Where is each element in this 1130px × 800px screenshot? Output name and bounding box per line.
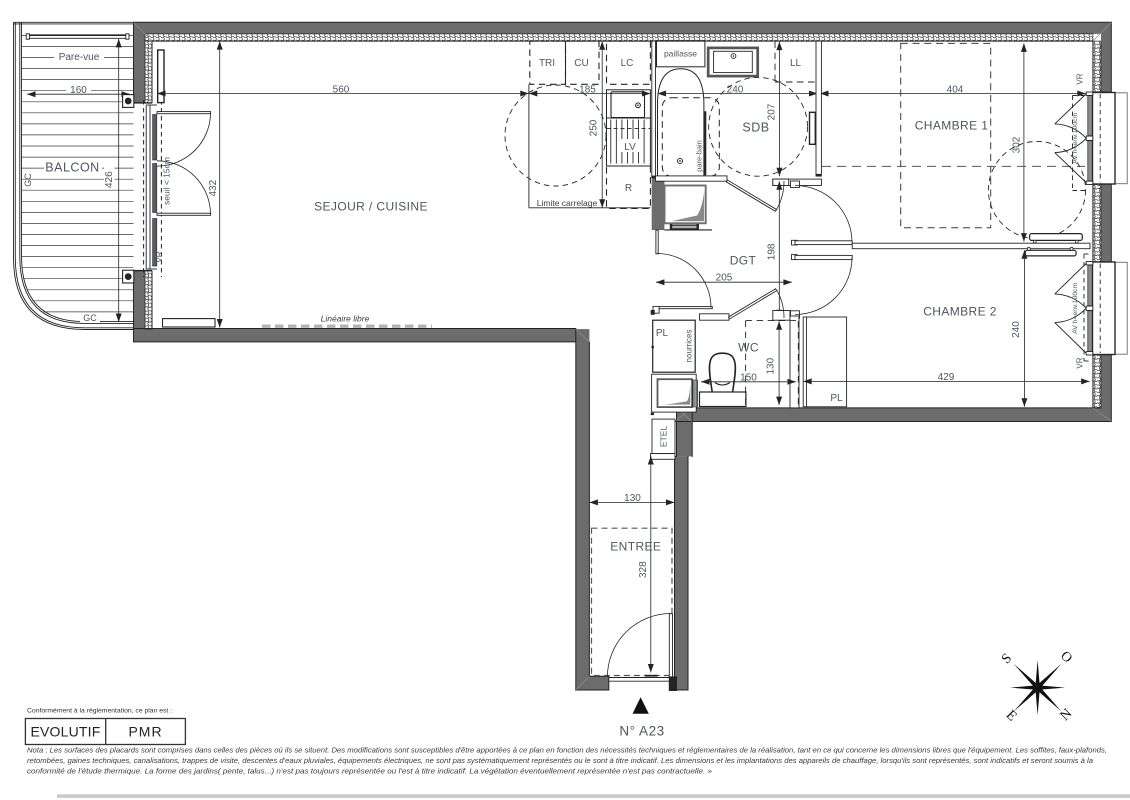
svg-text:SEJOUR / CUISINE: SEJOUR / CUISINE: [314, 200, 428, 214]
svg-text:ENTREE: ENTREE: [610, 540, 661, 554]
svg-text:Pare-vue: Pare-vue: [59, 52, 100, 63]
svg-text:ETEL: ETEL: [659, 426, 669, 448]
svg-text:429: 429: [938, 372, 955, 383]
svg-text:CU: CU: [574, 58, 588, 69]
svg-text:240: 240: [727, 84, 744, 95]
svg-text:130: 130: [624, 493, 641, 504]
svg-text:Limite carrelage: Limite carrelage: [537, 198, 598, 208]
svg-text:BALCON: BALCON: [45, 161, 99, 175]
svg-text:Nota : Les surfaces des placar: Nota : Les surfaces des placards sont co…: [27, 746, 1107, 755]
svg-text:150: 150: [740, 372, 757, 383]
svg-text:160: 160: [70, 85, 87, 96]
svg-text:retombées, gaines techniques,: retombées, gaines techniques, canalisati…: [27, 756, 1093, 765]
svg-text:560: 560: [333, 84, 350, 95]
svg-text:240: 240: [1011, 321, 1022, 338]
svg-text:seuil < 15cm: seuil < 15cm: [162, 157, 172, 205]
svg-text:EVOLUTIF: EVOLUTIF: [30, 724, 100, 740]
svg-text:PL: PL: [656, 328, 669, 339]
svg-text:432: 432: [208, 179, 219, 196]
svg-text:LC: LC: [621, 58, 634, 69]
svg-text:CHAMBRE 2: CHAMBRE 2: [923, 305, 997, 319]
svg-text:N° A23: N° A23: [619, 724, 664, 739]
svg-text:VR: VR: [1076, 73, 1085, 84]
svg-text:130: 130: [766, 357, 777, 374]
svg-text:nourrices: nourrices: [685, 330, 694, 363]
svg-text:205: 205: [716, 273, 733, 284]
svg-text:Linéaire libre: Linéaire libre: [321, 314, 370, 324]
svg-text:AV h=env.100cm: AV h=env.100cm: [1072, 112, 1079, 163]
svg-text:TRI: TRI: [539, 58, 555, 69]
svg-text:VR: VR: [1076, 357, 1085, 368]
svg-text:paillasse: paillasse: [664, 49, 697, 59]
svg-text:PL: PL: [830, 393, 843, 404]
svg-text:pare-bain: pare-bain: [695, 140, 704, 172]
svg-text:328: 328: [638, 561, 649, 578]
svg-text:426: 426: [104, 171, 115, 188]
svg-text:404: 404: [947, 84, 964, 95]
svg-text:CHAMBRE 1: CHAMBRE 1: [915, 119, 989, 133]
svg-text:185: 185: [579, 84, 596, 95]
svg-text:207: 207: [767, 103, 778, 120]
svg-text:LV: LV: [624, 142, 636, 153]
svg-text:AV h=env.100cm: AV h=env.100cm: [1072, 282, 1079, 333]
svg-text:198: 198: [766, 243, 777, 260]
svg-text:LL: LL: [790, 58, 802, 69]
svg-text:VR: VR: [155, 251, 164, 262]
svg-text:R: R: [625, 183, 632, 194]
svg-text:GC: GC: [23, 173, 33, 187]
svg-text:DGT: DGT: [730, 254, 757, 268]
svg-text:250: 250: [589, 119, 600, 136]
svg-text:WC: WC: [738, 341, 759, 355]
svg-text:302: 302: [1012, 136, 1023, 153]
svg-text:SDB: SDB: [742, 121, 769, 135]
svg-text:GC: GC: [83, 313, 97, 323]
svg-text:PMR: PMR: [128, 724, 162, 740]
svg-text:Conformément à la réglementati: Conformément à la réglementation, ce pla…: [27, 708, 172, 715]
svg-text:conformité de l'étude thermiqu: conformité de l'étude thermique. La form…: [27, 767, 712, 776]
